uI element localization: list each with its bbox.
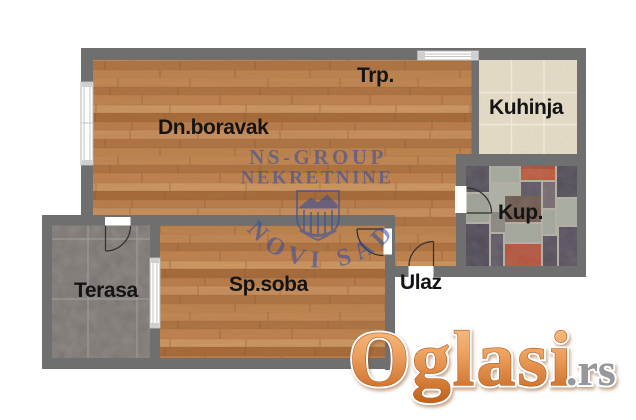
svg-text:NS-GROUP: NS-GROUP [249, 145, 387, 169]
svg-text:Oglasi: Oglasi [349, 315, 573, 402]
svg-text:.rs: .rs [566, 344, 616, 395]
svg-text:Dn.boravak: Dn.boravak [158, 116, 269, 139]
svg-text:Trp.: Trp. [357, 64, 394, 87]
svg-text:Terasa: Terasa [74, 279, 138, 302]
svg-text:Sp.soba: Sp.soba [229, 273, 309, 296]
svg-text:Ulaz: Ulaz [400, 271, 442, 294]
svg-text:NEKRETNINE: NEKRETNINE [241, 168, 394, 189]
svg-text:Kuhinja: Kuhinja [489, 96, 564, 119]
svg-text:Kup.: Kup. [498, 201, 543, 224]
